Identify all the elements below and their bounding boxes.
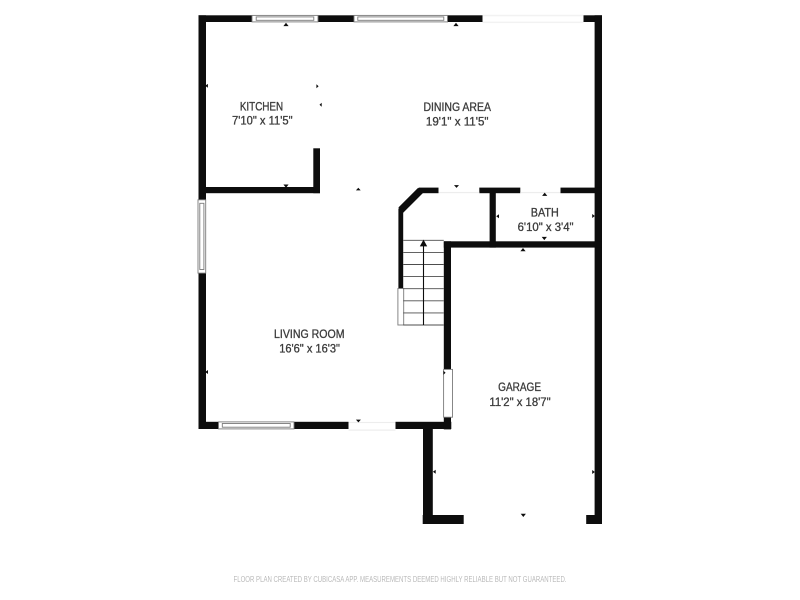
svg-text:KITCHEN: KITCHEN (240, 101, 283, 113)
svg-text:6'10" x 3'4": 6'10" x 3'4" (518, 222, 574, 234)
svg-text:16'6" x 16'3": 16'6" x 16'3" (279, 344, 340, 356)
svg-text:LIVING ROOM: LIVING ROOM (274, 329, 345, 341)
svg-text:FLOOR PLAN CREATED BY CUBICASA: FLOOR PLAN CREATED BY CUBICASA APP. MEAS… (234, 575, 567, 584)
svg-text:7'10" x 11'5": 7'10" x 11'5" (232, 116, 293, 128)
svg-text:19'1" x 11'5": 19'1" x 11'5" (426, 116, 489, 128)
svg-text:11'2" x 18'7": 11'2" x 18'7" (489, 397, 550, 409)
svg-text:BATH: BATH (531, 207, 559, 219)
svg-text:DINING AREA: DINING AREA (423, 102, 491, 114)
svg-text:GARAGE: GARAGE (498, 382, 541, 394)
